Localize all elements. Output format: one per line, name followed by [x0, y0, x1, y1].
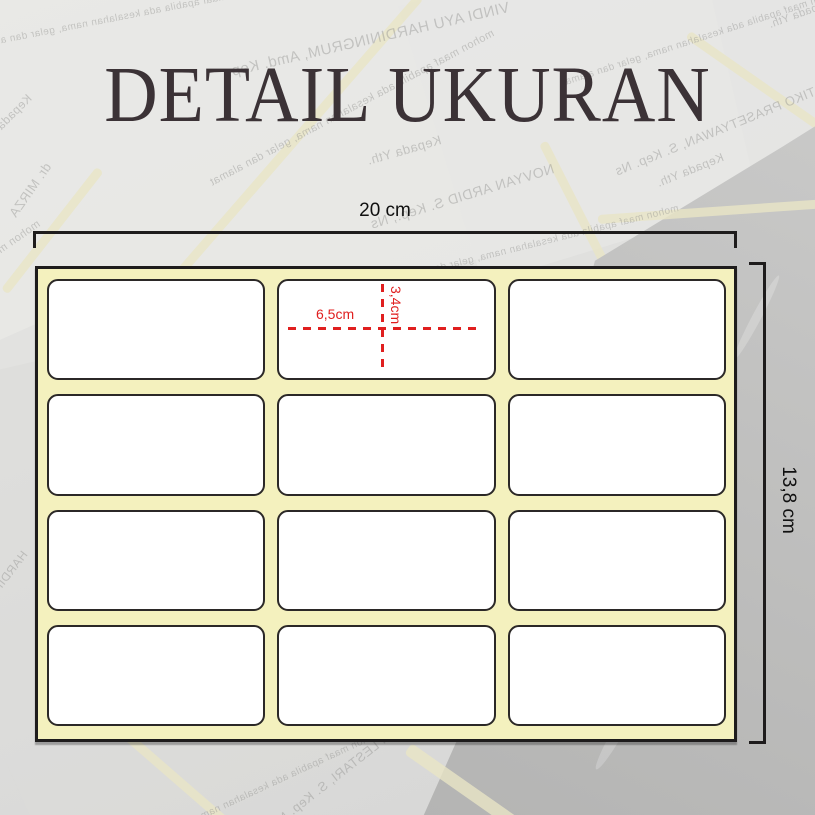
- watermark-text: HARDININGRUM: [0, 548, 31, 636]
- sticker-cell: [47, 279, 265, 380]
- watermark-text: mohon maaf apabila ada kesalahan nama, g…: [0, 0, 263, 51]
- sticker-cell: [508, 625, 726, 726]
- sticker-cell: [277, 510, 495, 611]
- sticker-cell: [47, 394, 265, 495]
- sticker-width-dashed-line: [288, 327, 482, 330]
- sheet-width-label: 20 cm: [33, 200, 737, 222]
- sticker-cell: [277, 625, 495, 726]
- sheet-height-label: 13,8 cm: [777, 466, 799, 534]
- sticker-cell: [47, 625, 265, 726]
- sticker-cell: [508, 279, 726, 380]
- sticker-height-dashed-line: [381, 284, 384, 372]
- size-detail-graphic: mohon maaf apabila ada kesalahan nama, g…: [0, 0, 815, 815]
- width-dimension-bracket: [33, 231, 737, 248]
- height-dimension-bracket: [749, 262, 766, 744]
- sticker-cell: [47, 510, 265, 611]
- sticker-cell: [508, 510, 726, 611]
- sticker-cell: [508, 394, 726, 495]
- sticker-cell: [277, 394, 495, 495]
- sticker-width-label: 6,5cm: [316, 306, 354, 322]
- page-title: DETAIL UKURAN: [0, 55, 815, 135]
- sticker-height-label: 3,4cm: [388, 286, 404, 324]
- sticker-grid: [47, 279, 726, 726]
- sticker-sheet: [35, 266, 737, 742]
